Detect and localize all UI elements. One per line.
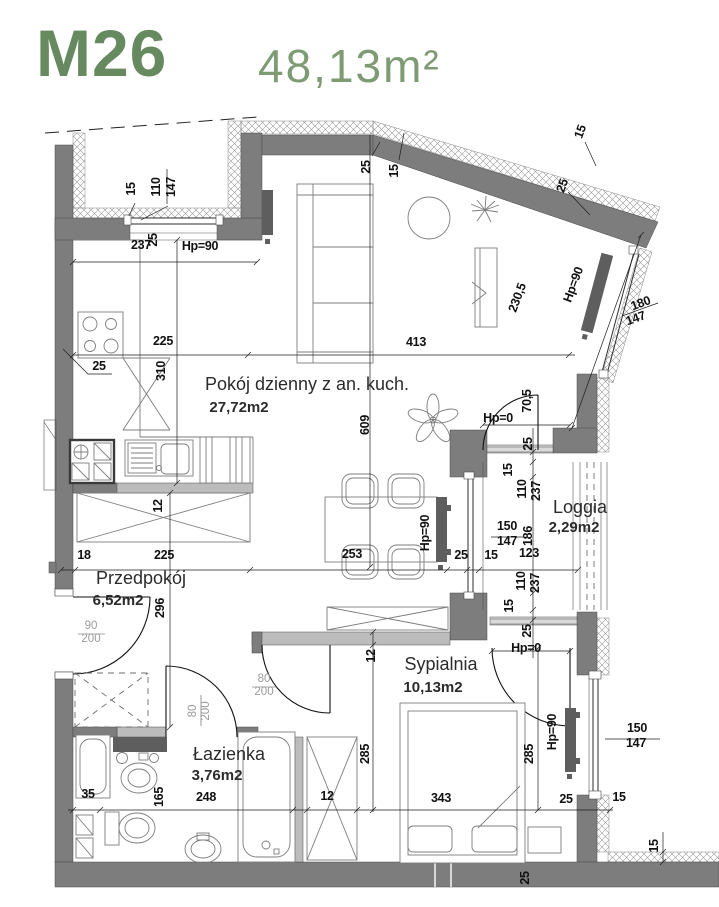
tv-board xyxy=(472,248,497,327)
dimension-label: 15 xyxy=(612,790,626,804)
dimension-label: 225 xyxy=(154,548,174,562)
dimension-label: 285 xyxy=(522,744,536,764)
dimension-label: 15 xyxy=(124,182,138,196)
room-area: 2,29m2 xyxy=(549,519,600,536)
toilet xyxy=(105,812,155,845)
room-area: 27,72m2 xyxy=(209,399,268,416)
dimension-label: 15 xyxy=(484,548,498,562)
room-name: Loggia xyxy=(553,497,608,517)
dimension-label: 413 xyxy=(406,335,426,349)
dimension-label: 35 xyxy=(81,787,95,801)
bath-cabinet xyxy=(76,815,93,858)
fridge-cabinet xyxy=(200,437,250,483)
loggia-window xyxy=(464,472,474,599)
vent-shaft xyxy=(70,440,114,483)
stairwell-strip xyxy=(44,420,56,490)
room-name: Pokój dzienny z an. kuch. xyxy=(205,374,409,394)
sink xyxy=(125,440,193,476)
round-table xyxy=(408,197,450,239)
room-area: 10,13m2 xyxy=(403,679,462,696)
radiator-dining xyxy=(436,497,451,570)
plant-icon xyxy=(471,196,499,222)
stove xyxy=(78,312,123,358)
dimension-label: 230,5 xyxy=(506,281,529,314)
bedroom-door xyxy=(262,645,330,713)
door-size-label: 80 xyxy=(258,673,271,685)
dimension-label: 25 xyxy=(521,437,535,451)
dimension-label: 25 xyxy=(559,792,573,806)
dimension-label: Hp=90 xyxy=(418,514,432,551)
dimension-label: 147 xyxy=(497,534,517,548)
door-size-label: 200 xyxy=(81,633,100,645)
dimension-label: 150 xyxy=(497,519,517,533)
dimension-label: 237 xyxy=(528,573,542,593)
hall-wardrobe xyxy=(75,673,148,727)
nightstand xyxy=(528,827,561,853)
dimension-label: 25 xyxy=(359,160,373,174)
dimension-label: 147 xyxy=(164,177,178,197)
sofa xyxy=(297,184,373,363)
dimension-label: Hp=90 xyxy=(560,265,586,304)
room-area: 3,76m2 xyxy=(192,767,243,784)
dimension-label: 147 xyxy=(626,736,646,750)
radiator-bedroom xyxy=(565,708,580,779)
bedroom-furniture xyxy=(307,703,561,863)
dimension-label: 609 xyxy=(358,415,372,435)
dimension-label: 285 xyxy=(358,744,372,764)
radiator-living-left xyxy=(262,190,273,244)
floor-plan-drawing: Pokój dzienny z an. kuch.27,72m2Przedpok… xyxy=(0,0,719,907)
dimension-label: 12 xyxy=(364,649,378,663)
bed xyxy=(400,703,525,863)
dimension-label: 237 xyxy=(131,238,151,252)
room-name: Sypialnia xyxy=(404,654,478,674)
bedroom-window xyxy=(589,671,601,799)
dimension-label: 165 xyxy=(152,787,166,807)
dimension-label: 123 xyxy=(519,546,539,560)
dimension-label: 110 xyxy=(514,571,528,591)
room-area: 6,52m2 xyxy=(93,592,144,609)
dimension-label: 12 xyxy=(320,789,334,803)
room-name: Przedpokój xyxy=(96,568,186,588)
wardrobe-top xyxy=(327,607,448,630)
dimension-label: 25 xyxy=(92,359,106,373)
dimension-label: 296 xyxy=(153,598,167,618)
door-size-label: 200 xyxy=(254,686,273,698)
dimension-label: 15 xyxy=(571,123,589,141)
room-name: Łazienka xyxy=(193,744,266,764)
dimension-label: Hp=0 xyxy=(511,641,541,655)
dimension-label: 110 xyxy=(149,177,163,197)
dimension-label: Hp=90 xyxy=(182,239,219,253)
dimension-label: 248 xyxy=(196,790,216,804)
dimension-label: 15 xyxy=(502,599,516,613)
washing-machine xyxy=(113,737,167,764)
dimension-label: 186 xyxy=(521,526,535,546)
dimension-label: 343 xyxy=(431,791,451,805)
dimension-label: 150 xyxy=(627,721,647,735)
dimension-label: Hp=90 xyxy=(545,713,559,750)
dimension-label: 237 xyxy=(529,481,543,501)
dimension-label: 110 xyxy=(515,479,529,499)
door-size-label: 200 xyxy=(200,701,212,720)
dimension-label: 12 xyxy=(151,499,165,513)
dimension-label: 310 xyxy=(154,361,168,381)
door-size-label: 90 xyxy=(85,620,98,632)
dimension-label: 253 xyxy=(342,547,362,561)
dimension-label: Hp=0 xyxy=(483,411,513,425)
dimension-label: 70,5 xyxy=(520,389,534,412)
dimension-label: 15 xyxy=(647,839,661,853)
dimension-label: 15 xyxy=(387,164,401,178)
dimension-label: 25 xyxy=(518,871,532,885)
overhead-dashed-line xyxy=(45,117,258,133)
dimension-label: 18 xyxy=(77,548,91,562)
door-size-label: 80 xyxy=(187,705,199,718)
dimension-label: 25 xyxy=(454,548,468,562)
dimension-label: 15 xyxy=(501,463,515,477)
dimension-label: 225 xyxy=(153,334,173,348)
washbasin xyxy=(185,833,221,863)
dimension-label: 25 xyxy=(520,624,534,638)
floor-plan-page: M26 48,13m² xyxy=(0,0,719,907)
